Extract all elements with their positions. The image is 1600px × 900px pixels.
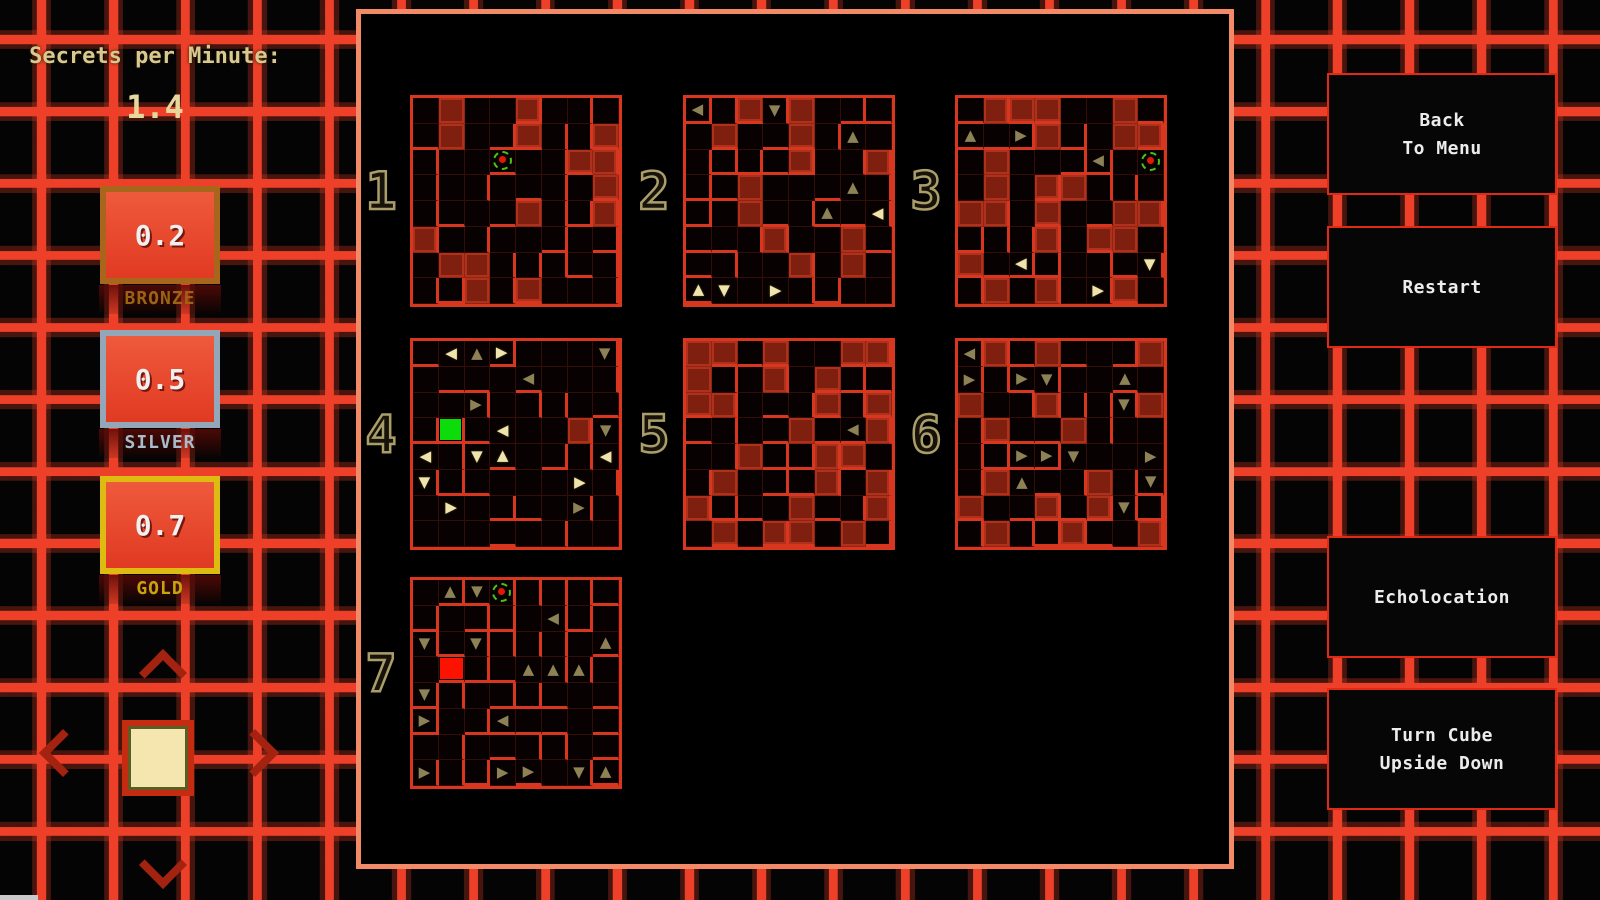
bronze-medal-box: 0.2: [100, 186, 220, 284]
maze-cell: [1138, 393, 1164, 419]
maze-cell: [490, 175, 516, 201]
maze-cell: ▼: [1035, 367, 1061, 393]
maze-cell: [738, 341, 764, 367]
maze-cell: [568, 683, 594, 709]
maze-cell: ▼: [413, 470, 439, 496]
maze-number-7: 7: [358, 643, 404, 705]
maze-cell: [413, 341, 439, 367]
maze-cell: [465, 253, 491, 279]
maze-cell: [516, 175, 542, 201]
maze-cell: ▼: [1138, 470, 1164, 496]
maze-cell: [866, 150, 892, 176]
maze-cell: [1035, 124, 1061, 150]
maze-cell: [841, 341, 867, 367]
maze-7[interactable]: ▲▼◀▼▼▲▲▲▲▼▶◀▶▶▶▼▲: [410, 577, 622, 789]
maze-cell: [1010, 278, 1036, 304]
maze-cell: [789, 253, 815, 279]
maze-cell: [1035, 175, 1061, 201]
maze-cell: [1087, 496, 1113, 522]
maze-cell: [1035, 496, 1061, 522]
maze-cell: [490, 98, 516, 124]
maze-cell: [593, 175, 619, 201]
maze-cell: [984, 521, 1010, 547]
maze-3[interactable]: ▲▶◀◀▼▶: [955, 95, 1167, 307]
maze-cell: [789, 201, 815, 227]
direction-arrow-icon: ▲: [547, 662, 559, 677]
maze-cell: [712, 367, 738, 393]
maze-cell: [763, 470, 789, 496]
maze-cell: ◀: [841, 418, 867, 444]
maze-cell: [686, 201, 712, 227]
maze-cell: [568, 124, 594, 150]
maze-cell: [712, 175, 738, 201]
maze-cell: ▲: [815, 201, 841, 227]
maze-cell: [866, 253, 892, 279]
maze-cell: ▼: [413, 632, 439, 658]
maze-cell: [490, 201, 516, 227]
maze-cell: [490, 657, 516, 683]
direction-arrow-icon: ◀: [445, 346, 457, 361]
direction-arrow-icon: ▶: [419, 713, 431, 728]
maze-number-4: 4: [358, 404, 404, 466]
maze-cell: [1113, 150, 1139, 176]
maze-cell: [866, 418, 892, 444]
maze-cell: [439, 521, 465, 547]
direction-arrow-icon: ▲: [1016, 475, 1028, 490]
maze-cell: ▲: [1010, 470, 1036, 496]
restart-button[interactable]: Restart: [1327, 226, 1557, 348]
maze-cell: ◀: [542, 606, 568, 632]
current-face-square[interactable]: [128, 726, 188, 790]
maze-cell: [413, 521, 439, 547]
direction-arrow-icon: ▼: [419, 636, 431, 651]
maze-cell: [413, 735, 439, 761]
maze-cell: [984, 393, 1010, 419]
maze-cell: [958, 175, 984, 201]
maze-cell: [542, 683, 568, 709]
maze-cell: [958, 418, 984, 444]
maze-cell: [1087, 227, 1113, 253]
maze-cell: [516, 253, 542, 279]
maze-cell: [1035, 253, 1061, 279]
direction-arrow-icon: ▲: [693, 282, 705, 297]
direction-arrow-icon: ▶: [470, 397, 482, 412]
silver-medal: 0.5 SILVER: [99, 330, 221, 458]
maze-cell: [439, 175, 465, 201]
direction-arrow-icon: ▼: [1068, 449, 1080, 464]
maze-cell: [1010, 496, 1036, 522]
maze-cell: [439, 709, 465, 735]
maze-cell: [413, 175, 439, 201]
maze-cell: [866, 341, 892, 367]
maze-cell: ◀: [490, 418, 516, 444]
maze-cell: [958, 470, 984, 496]
direction-arrow-icon: ▲: [600, 635, 612, 650]
maze-cell: ◀: [866, 201, 892, 227]
maze-cell: [815, 444, 841, 470]
maze-cell: [593, 521, 619, 547]
maze-cell: [1138, 367, 1164, 393]
maze-cell: [465, 760, 491, 786]
maze-cell: [1010, 341, 1036, 367]
maze-cell: [738, 98, 764, 124]
direction-arrow-icon: ▲: [847, 129, 859, 144]
maze-cell: [958, 521, 984, 547]
direction-arrow-icon: ▼: [600, 423, 612, 438]
direction-arrow-icon: ▼: [1145, 474, 1157, 489]
maze-cell: [439, 470, 465, 496]
maze-cell: [1010, 521, 1036, 547]
maze-cell: [789, 521, 815, 547]
maze-cell: [593, 735, 619, 761]
maze-cell: [542, 227, 568, 253]
maze-cell: [789, 367, 815, 393]
maze-cell: [542, 124, 568, 150]
maze-cell: [789, 150, 815, 176]
maze-cell: [490, 606, 516, 632]
maze-cell: [516, 393, 542, 419]
maze-cell: [413, 98, 439, 124]
maze-cell: [841, 393, 867, 419]
maze-cell: [568, 150, 594, 176]
maze-cell: ◀: [686, 98, 712, 124]
maze-cell: [686, 444, 712, 470]
maze-cell: [763, 175, 789, 201]
maze-cell: [789, 278, 815, 304]
maze-cell: [542, 150, 568, 176]
maze-cell: [542, 98, 568, 124]
direction-arrow-icon: ▼: [769, 103, 781, 118]
direction-arrow-icon: ▼: [471, 584, 483, 599]
direction-arrow-icon: ▼: [1118, 397, 1130, 412]
maze-cell: [439, 98, 465, 124]
maze-cell: ◀: [439, 341, 465, 367]
direction-arrow-icon: ▶: [523, 764, 535, 779]
maze-cell: [841, 496, 867, 522]
maze-cell: ▶: [568, 470, 594, 496]
maze-cell: [490, 367, 516, 393]
maze-cell: [1010, 201, 1036, 227]
maze-cell: [1138, 150, 1164, 176]
maze-cell: [1061, 278, 1087, 304]
maze-cell: [516, 606, 542, 632]
maze-cell: [542, 253, 568, 279]
maze-cell: [1035, 150, 1061, 176]
direction-arrow-icon: ▶: [1016, 371, 1028, 386]
maze-cell: [439, 418, 465, 444]
maze-cell: [516, 521, 542, 547]
maze-cell: [465, 367, 491, 393]
maze-cell: ▲: [841, 175, 867, 201]
maze-cell: [542, 735, 568, 761]
maze-2[interactable]: ◀▼▲▲▲◀▲▼▶: [683, 95, 895, 307]
maze-cell: [593, 201, 619, 227]
maze-cell: [490, 521, 516, 547]
maze-cell: [516, 735, 542, 761]
maze-cell: [815, 175, 841, 201]
maze-1[interactable]: [410, 95, 622, 307]
maze-cell: [712, 521, 738, 547]
maze-cell: [490, 150, 516, 176]
direction-arrow-icon: ▶: [445, 500, 457, 515]
maze-cell: [815, 253, 841, 279]
maze-cell: ▼: [1138, 253, 1164, 279]
maze-cell: [465, 98, 491, 124]
maze-cell: [490, 735, 516, 761]
direction-arrow-icon: ◀: [692, 102, 704, 117]
maze-cell: [984, 227, 1010, 253]
maze-cell: [1035, 393, 1061, 419]
maze-cell: [1010, 227, 1036, 253]
maze-cell: ▶: [568, 496, 594, 522]
maze-cell: [738, 227, 764, 253]
maze-cell: [1113, 124, 1139, 150]
direction-arrow-icon: ◀: [547, 611, 559, 626]
gold-medal-box: 0.7: [100, 476, 220, 574]
maze-cell: [568, 201, 594, 227]
red-highlight-cell: [440, 658, 463, 679]
maze-cell: [593, 709, 619, 735]
maze-cell: [712, 470, 738, 496]
maze-cell: ▶: [490, 760, 516, 786]
turn-cube-upside-down-button[interactable]: Turn Cube Upside Down: [1327, 688, 1557, 810]
maze-5[interactable]: ◀: [683, 338, 895, 550]
maze-cell: [568, 278, 594, 304]
maze-cell: [712, 444, 738, 470]
maze-cell: [789, 124, 815, 150]
maze-cell: [1010, 418, 1036, 444]
maze-cell: [465, 496, 491, 522]
maze-cell: [712, 418, 738, 444]
maze-cell: [789, 341, 815, 367]
maze-cell: [1138, 341, 1164, 367]
direction-arrow-icon: ◀: [964, 346, 976, 361]
maze-cell: [568, 632, 594, 658]
direction-arrow-icon: ▼: [419, 475, 431, 490]
maze-cell: [712, 227, 738, 253]
maze-cell: ▼: [568, 760, 594, 786]
direction-arrow-icon: ▼: [718, 283, 730, 298]
maze-cell: [542, 367, 568, 393]
maze-cell: [593, 367, 619, 393]
maze-cell: [1113, 227, 1139, 253]
maze-cell: ▲: [686, 278, 712, 304]
maze-cell: [593, 683, 619, 709]
maze-cell: [439, 760, 465, 786]
maze-cell: [984, 496, 1010, 522]
maze-cell: [1061, 496, 1087, 522]
maze-cell: [815, 418, 841, 444]
maze-cell: ▲: [1113, 367, 1139, 393]
maze-cell: [593, 278, 619, 304]
maze-cell: [465, 278, 491, 304]
maze-cell: [1061, 201, 1087, 227]
maze-cell: [686, 150, 712, 176]
maze-cell: [815, 470, 841, 496]
direction-arrow-icon: ◀: [1092, 153, 1104, 168]
direction-arrow-icon: ▲: [497, 448, 509, 463]
maze-cell: [841, 227, 867, 253]
maze-cell: ▼: [712, 278, 738, 304]
maze-cell: [1061, 521, 1087, 547]
maze-cell: [490, 580, 516, 606]
maze-cell: [568, 227, 594, 253]
maze-cell: [439, 150, 465, 176]
maze-cell: [789, 98, 815, 124]
maze-cell: [439, 444, 465, 470]
maze-cell: [763, 418, 789, 444]
maze-cell: [984, 253, 1010, 279]
maze-cell: [1087, 418, 1113, 444]
direction-arrow-icon: ▲: [1119, 371, 1131, 386]
maze-cell: [593, 606, 619, 632]
direction-arrow-icon: ▲: [573, 662, 585, 677]
maze-cell: [815, 227, 841, 253]
maze-cell: [815, 341, 841, 367]
maze-4[interactable]: ◀▲▶▼◀▶◀▼◀▼▲◀▼▶▶▶: [410, 338, 622, 550]
direction-arrow-icon: ▶: [574, 475, 586, 490]
maze-cell: [413, 393, 439, 419]
maze-cell: [516, 98, 542, 124]
maze-cell: [490, 393, 516, 419]
direction-arrow-icon: ◀: [497, 423, 509, 438]
maze-cell: [439, 367, 465, 393]
maze-cell: [686, 367, 712, 393]
maze-cell: [1035, 418, 1061, 444]
maze-cell: [439, 201, 465, 227]
maze-cell: [568, 98, 594, 124]
direction-arrow-icon: ▼: [599, 346, 611, 361]
secrets-per-minute-label: Secrets per Minute:: [5, 44, 305, 69]
button-label-line: To Menu: [1402, 138, 1481, 159]
maze-cell: [542, 632, 568, 658]
maze-cell: [958, 444, 984, 470]
maze-cell: [413, 227, 439, 253]
maze-cell: [1113, 444, 1139, 470]
maze-cell: [413, 418, 439, 444]
maze-cell: [593, 227, 619, 253]
maze-cell: ▲: [542, 657, 568, 683]
maze-cell: ◀: [958, 341, 984, 367]
maze-cell: [568, 735, 594, 761]
maze-cell: [763, 521, 789, 547]
maze-cell: ◀: [1087, 150, 1113, 176]
maze-cell: ▲: [841, 124, 867, 150]
maze-cell: [413, 367, 439, 393]
maze-cell: [542, 278, 568, 304]
maze-cell: [439, 227, 465, 253]
maze-cell: [763, 124, 789, 150]
maze-cell: [1113, 278, 1139, 304]
maze-cell: [593, 253, 619, 279]
maze-cell: [712, 201, 738, 227]
maze-cell: [568, 444, 594, 470]
maze-cell: [1061, 124, 1087, 150]
maze-cell: [413, 606, 439, 632]
maze-cell: [1061, 341, 1087, 367]
maze-cell: [841, 278, 867, 304]
maze-cell: ▶: [465, 393, 491, 419]
maze-cell: [1138, 418, 1164, 444]
maze-cell: [984, 470, 1010, 496]
maze-cell: [439, 124, 465, 150]
back-to-menu-button[interactable]: Back To Menu: [1327, 73, 1557, 195]
maze-cell: [490, 253, 516, 279]
maze-cell: ▼: [465, 444, 491, 470]
maze-cell: [686, 124, 712, 150]
maze-cell: [958, 278, 984, 304]
maze-cell: [542, 444, 568, 470]
maze-cell: [841, 444, 867, 470]
maze-cell: [568, 709, 594, 735]
maze-cell: [841, 367, 867, 393]
maze-cell: ◀: [413, 444, 439, 470]
direction-arrow-icon: ▶: [573, 500, 585, 515]
maze-number-3: 3: [903, 161, 949, 223]
maze-cell: [490, 632, 516, 658]
maze-cell: [413, 253, 439, 279]
maze-cell: [984, 341, 1010, 367]
maze-cell: [465, 683, 491, 709]
maze-cell: [686, 175, 712, 201]
maze-cell: [1138, 98, 1164, 124]
maze-cell: [593, 98, 619, 124]
secrets-per-minute-value: 1.4: [5, 88, 305, 126]
maze-cell: [1087, 470, 1113, 496]
maze-cell: ▶: [490, 341, 516, 367]
maze-cell: [1087, 393, 1113, 419]
maze-cell: [866, 444, 892, 470]
maze-cell: [465, 606, 491, 632]
maze-cell: [686, 496, 712, 522]
bronze-medal-value: 0.2: [135, 219, 186, 252]
maze-cell: [439, 606, 465, 632]
player-marker: [493, 151, 512, 170]
player-marker: [492, 583, 511, 602]
maze-cell: [593, 393, 619, 419]
maze-cell: [568, 418, 594, 444]
maze-cell: [1035, 341, 1061, 367]
maze-cell: [866, 124, 892, 150]
maze-6[interactable]: ◀▶▶▼▲▼▶▶▼▶▲▼▼: [955, 338, 1167, 550]
echolocation-button[interactable]: Echolocation: [1327, 536, 1557, 658]
maze-cell: [465, 201, 491, 227]
maze-cell: [542, 709, 568, 735]
maze-cell: [593, 496, 619, 522]
player-marker: [1141, 152, 1160, 171]
maze-cell: ▼: [1113, 496, 1139, 522]
maze-cell: ▶: [1087, 278, 1113, 304]
maze-cell: [542, 341, 568, 367]
maze-cell: [712, 98, 738, 124]
maze-cell: [1035, 470, 1061, 496]
maze-cell: [866, 278, 892, 304]
maze-cell: [1035, 227, 1061, 253]
maze-cell: [439, 278, 465, 304]
direction-arrow-icon: ▲: [600, 764, 612, 779]
direction-arrow-icon: ▲: [523, 662, 535, 677]
maze-cell: ▼: [763, 98, 789, 124]
maze-cell: [1087, 341, 1113, 367]
maze-cell: [439, 632, 465, 658]
maze-cell: [738, 496, 764, 522]
maze-cell: [712, 150, 738, 176]
silver-medal-value: 0.5: [135, 363, 186, 396]
maze-cell: [1061, 253, 1087, 279]
maze-cell: [490, 470, 516, 496]
maze-cell: [866, 470, 892, 496]
maze-cell: [984, 418, 1010, 444]
